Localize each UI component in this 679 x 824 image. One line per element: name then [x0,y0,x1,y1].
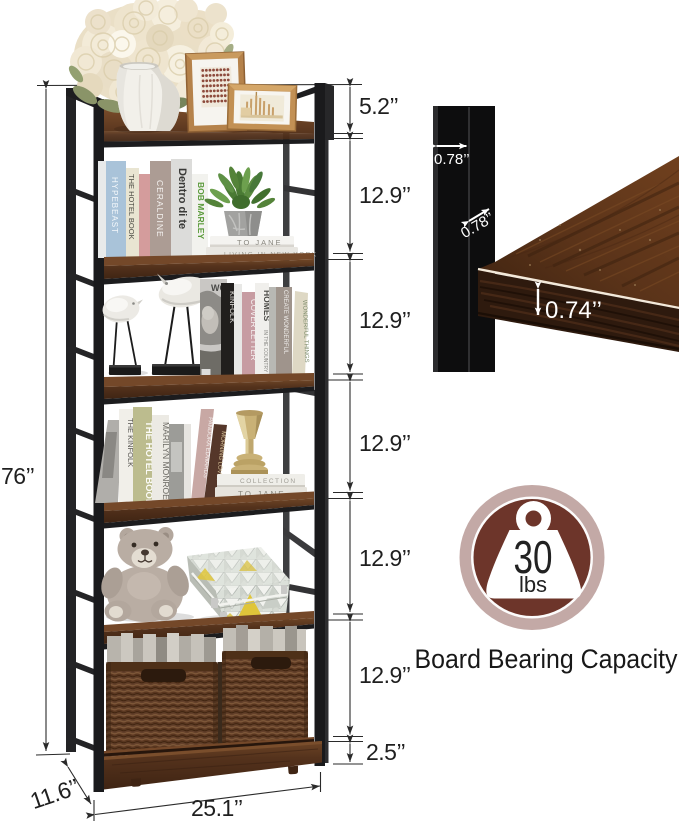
svg-text:BOB MARLEY: BOB MARLEY [196,182,206,239]
svg-text:25.1’’: 25.1’’ [191,795,243,821]
svg-text:12.9’’: 12.9’’ [359,662,411,688]
svg-text:12.9’’: 12.9’’ [359,307,411,333]
svg-text:THE HOTEL BOOK: THE HOTEL BOOK [127,174,136,240]
svg-text:HYPEBEAST: HYPEBEAST [110,177,119,234]
svg-text:5.2’’: 5.2’’ [359,93,398,119]
svg-text:12.9’’: 12.9’’ [359,182,411,208]
svg-text:76’’: 76’’ [1,463,34,489]
svg-text:IN THE COUNTRY: IN THE COUNTRY [262,330,268,373]
svg-text:Dentro di te: Dentro di te [176,168,188,229]
svg-text:COLLECTION: COLLECTION [240,478,297,485]
svg-text:Board Bearing Capacity: Board Bearing Capacity [415,644,678,674]
svg-text:CERALDINE: CERALDINE [155,180,165,238]
svg-text:CREATE WONDERFUL: CREATE WONDERFUL [282,290,288,355]
svg-text:lbs: lbs [519,572,547,597]
svg-text:2.5’’: 2.5’’ [366,739,405,765]
svg-text:TO JANE: TO JANE [237,238,283,247]
svg-text:12.9’’: 12.9’’ [359,545,411,571]
svg-text:12.9’’: 12.9’’ [359,430,411,456]
svg-text:0.78’’: 0.78’’ [434,151,470,168]
svg-text:0.74’’: 0.74’’ [545,297,602,324]
